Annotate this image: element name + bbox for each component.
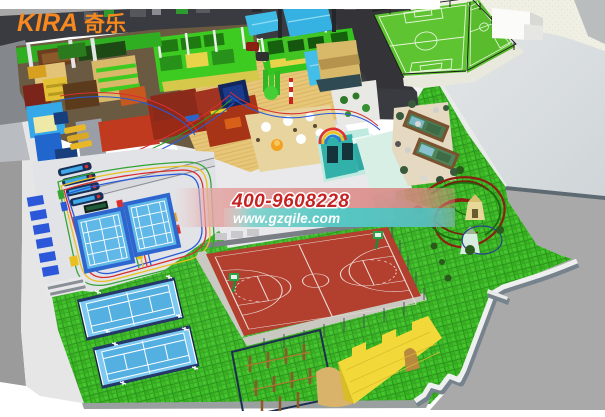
svg-text:400-9608228: 400-9608228 xyxy=(231,191,350,212)
svg-text:KIRA: KIRA xyxy=(17,9,78,37)
svg-text:www.gzqile.com: www.gzqile.com xyxy=(233,211,340,226)
svg-text:奇乐: 奇乐 xyxy=(84,13,126,36)
